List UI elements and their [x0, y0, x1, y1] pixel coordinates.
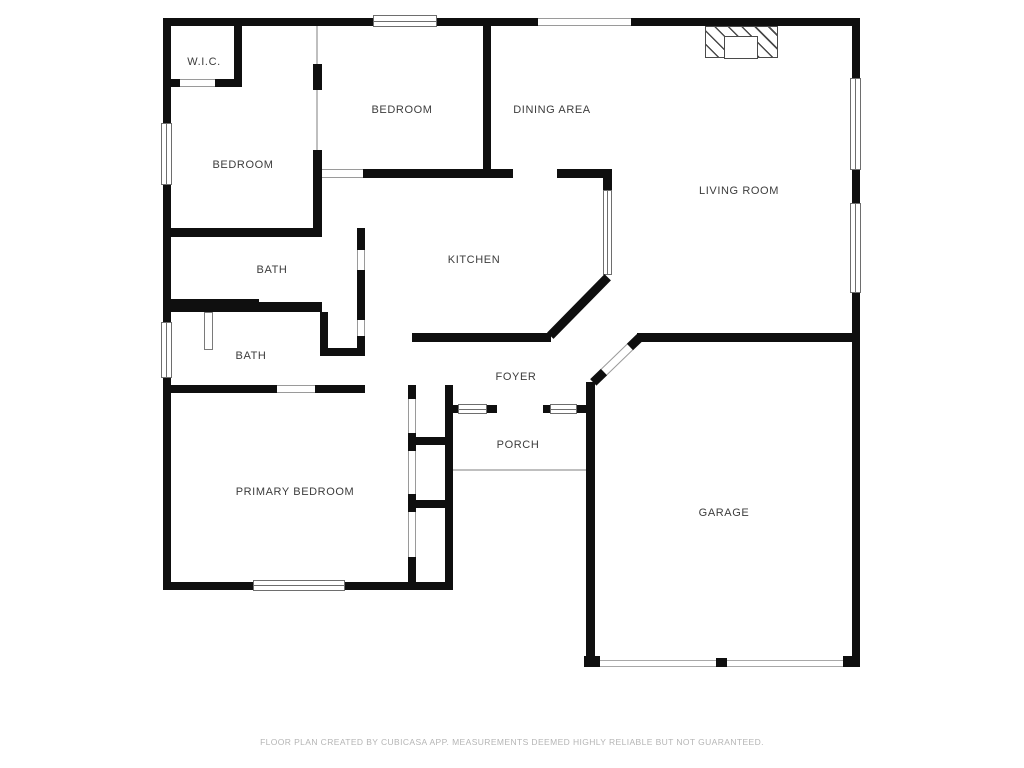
opening-top-dining	[538, 18, 631, 26]
window-porch-1	[458, 404, 487, 414]
door-closet-1	[408, 399, 416, 433]
wall-garage-top	[637, 333, 860, 342]
wall-kitchen-bottom	[412, 333, 551, 342]
door-wic	[180, 79, 215, 87]
room-label-living-room: LIVING ROOM	[699, 185, 779, 197]
room-label-primary-bedroom: PRIMARY BEDROOM	[236, 486, 355, 498]
wall-vestibule-right-b	[357, 336, 365, 356]
wall-porch-top-c	[543, 405, 550, 413]
wall-vestibule-right-a	[357, 312, 365, 320]
door-closet-2	[408, 451, 416, 494]
window-porch-2	[550, 404, 577, 414]
window-living-1	[850, 78, 861, 170]
wall-porch-top-b	[487, 405, 497, 413]
wall-kitchen-top-a	[363, 169, 513, 178]
room-label-bath-upper: BATH	[257, 264, 288, 276]
door-bath1	[357, 250, 365, 270]
porch-edge	[453, 469, 588, 471]
garage-entry-door-diagonal	[590, 333, 644, 385]
door-vestibule	[357, 320, 365, 336]
wall-kitchen-stub	[603, 178, 612, 190]
room-label-foyer: FOYER	[496, 371, 537, 383]
fireplace-icon	[705, 26, 778, 58]
room-label-wic: W.I.C.	[187, 56, 221, 68]
door-leaf-bath2	[204, 312, 213, 350]
room-label-bedroom-top: BEDROOM	[371, 104, 432, 116]
wall-closet-left-a	[408, 385, 416, 399]
wall-bath1-bottom-thick	[163, 299, 259, 312]
window-kitchen-pass	[603, 190, 612, 275]
window-living-2	[850, 203, 861, 293]
window-bedroom-left	[161, 123, 172, 185]
room-label-porch: PORCH	[497, 439, 540, 451]
wall-closet-left-b	[408, 433, 416, 451]
wall-closet-left-d	[408, 557, 416, 590]
wall-closet-divider-1	[416, 437, 445, 445]
wall-bedroom-left-right	[313, 150, 322, 237]
room-label-bedroom-left: BEDROOM	[212, 159, 273, 171]
room-label-bath-lower: BATH	[236, 350, 267, 362]
room-label-dining-area: DINING AREA	[513, 104, 591, 116]
wall-bedroom-left-stub	[313, 64, 322, 90]
wall-bath1-right-b	[357, 270, 365, 312]
window-top	[373, 15, 437, 27]
door-bedroom-top	[322, 169, 363, 178]
disclaimer-text: FLOOR PLAN CREATED BY CUBICASA APP. MEAS…	[260, 737, 764, 747]
wall-closet-left-c	[408, 494, 416, 512]
garage-post-left	[584, 656, 600, 667]
wall-closet-right	[445, 385, 453, 590]
wall-bedroom-dining	[483, 26, 491, 169]
wall-bedroom-left-bottom	[163, 228, 322, 237]
wall-porch-top-a	[445, 405, 458, 413]
fireplace-firebox	[724, 36, 758, 59]
wall-kitchen-top-b	[557, 169, 612, 178]
wall-garage-left	[586, 382, 595, 667]
floor-plan: W.I.C. BEDROOM BEDROOM DINING AREA LIVIN…	[0, 0, 1024, 768]
garage-post-middle	[716, 658, 727, 667]
room-label-kitchen: KITCHEN	[448, 254, 500, 266]
wall-bath1-bottom	[259, 302, 322, 312]
window-bath-lower	[161, 322, 172, 378]
wall-primary-top-a	[163, 385, 277, 393]
wall-top	[163, 18, 860, 26]
wall-kitchen-diagonal	[547, 274, 611, 339]
door-primary-bedroom	[277, 385, 315, 393]
window-primary-bedroom	[253, 580, 345, 591]
wall-wic-right	[234, 26, 242, 83]
door-closet-3	[408, 512, 416, 557]
garage-post-right	[843, 656, 860, 667]
room-label-garage: GARAGE	[699, 507, 750, 519]
wall-closet-divider-2	[416, 500, 445, 508]
wall-primary-top-b	[315, 385, 365, 393]
wall-wic-bottom-b	[215, 79, 242, 87]
wall-wic-bottom-a	[163, 79, 180, 87]
door-garage-entry	[601, 344, 633, 375]
wall-bath1-right-a	[357, 228, 365, 250]
